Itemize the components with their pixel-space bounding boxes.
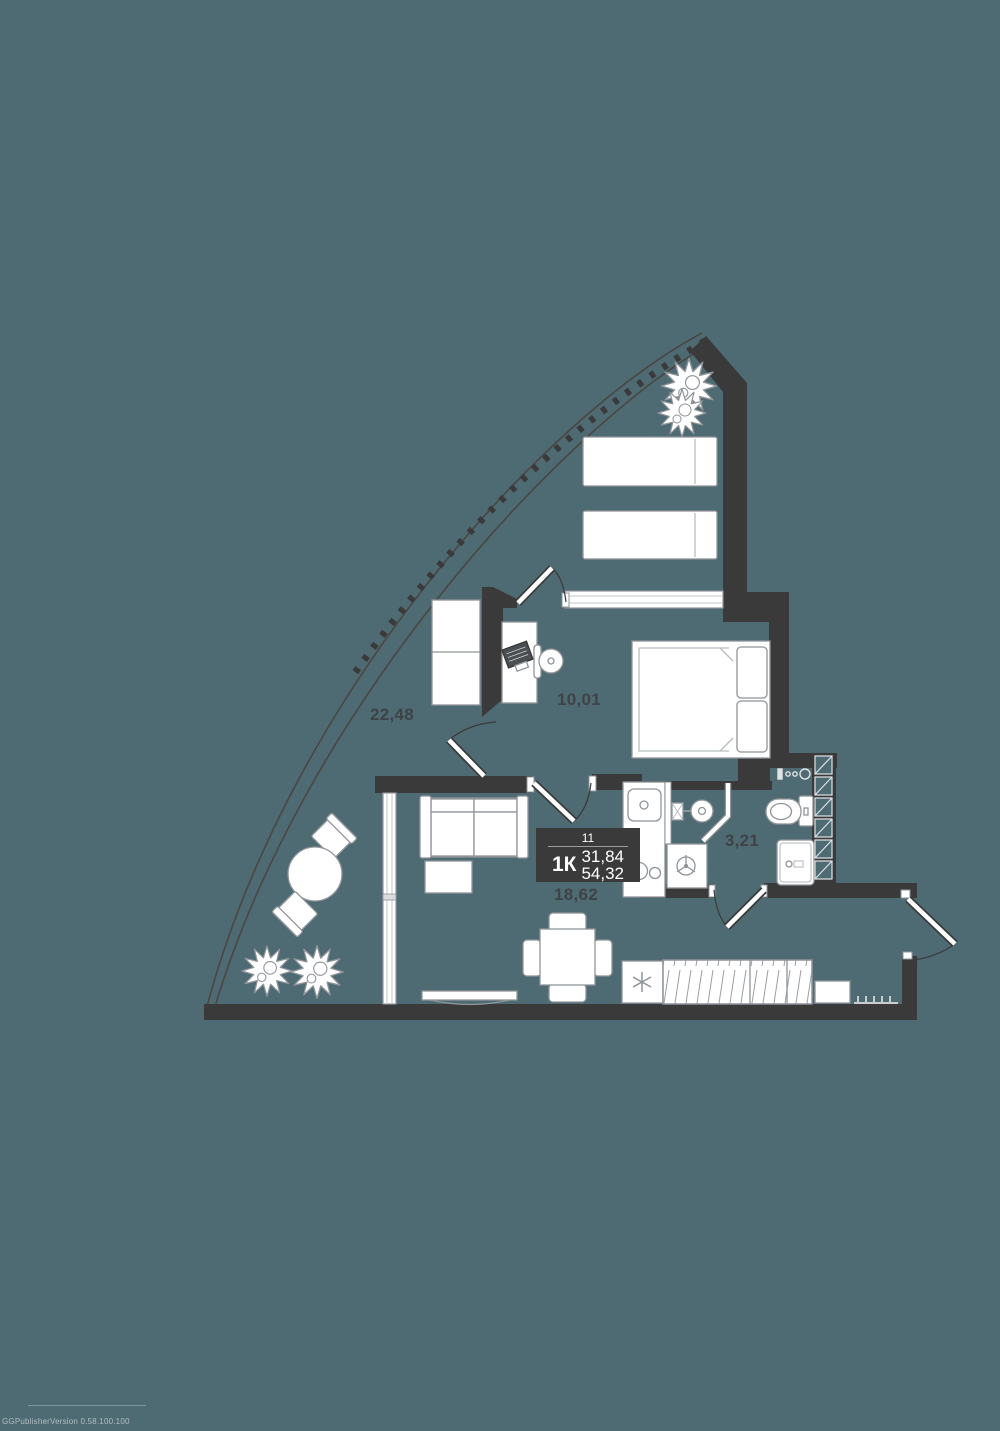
apartment-number: 11 (548, 830, 628, 847)
refrigerator (622, 961, 663, 1003)
apartment-area-secondary: 54,32 (581, 865, 624, 882)
chair-icon (549, 984, 586, 1002)
wash-basin (672, 800, 713, 822)
double-bed (632, 641, 770, 758)
wall-bedroom-east (769, 605, 789, 757)
floor-plan-page: 22,48 10,01 3,21 18,62 11 1К 31,84 54,32… (0, 0, 1000, 1431)
tv (422, 991, 517, 1005)
watermark-rule (28, 1405, 146, 1406)
terrace-bedroom-door[interactable] (518, 568, 569, 607)
sunbed (583, 437, 717, 486)
bedroom-window (565, 591, 723, 608)
desk-chair (534, 645, 563, 678)
partition-wall (665, 782, 671, 844)
shoe-bench (815, 981, 850, 1003)
chair-icon (523, 940, 541, 976)
dining-set (523, 913, 612, 1002)
chair-icon (594, 940, 612, 976)
wall-bedroom-west-diagonal (482, 699, 503, 717)
floor-plan-drawing (0, 0, 1000, 1431)
room-label-terrace: 22,48 (361, 705, 423, 725)
washing-machine (777, 840, 814, 885)
plant-icon (291, 946, 344, 999)
built-in-wardrobe (663, 960, 812, 1004)
living-room-door[interactable] (527, 776, 596, 821)
entrance-door[interactable] (901, 890, 955, 960)
sunbed (583, 511, 717, 559)
dining-table (540, 929, 595, 985)
bedroom-door[interactable] (449, 722, 496, 776)
room-label-living-kitchen: 18,62 (546, 885, 606, 905)
pillow (737, 701, 767, 752)
shower-tray (667, 844, 707, 888)
room-label-bathroom: 3,21 (714, 831, 770, 851)
bathroom-door[interactable] (709, 885, 767, 927)
wall-east-lower (902, 956, 917, 1012)
chair-icon (549, 913, 586, 931)
wall-south (204, 1004, 917, 1020)
apartment-type-label: 1К (552, 853, 577, 877)
watermark-text: GGPublisherVersion 0.58.100.100 (2, 1417, 130, 1426)
toilet (766, 796, 813, 826)
living-room-window (383, 793, 396, 1004)
sofa (420, 796, 528, 858)
pillow (737, 647, 767, 698)
apartment-area-primary: 31,84 (581, 848, 624, 865)
wardrobe (432, 600, 480, 705)
plant-icon (242, 946, 292, 996)
wall-bedroom-west (482, 599, 503, 699)
wall-living-north (375, 776, 532, 793)
utility-meters (778, 769, 810, 779)
room-label-bedroom: 10,01 (552, 690, 606, 710)
kitchen-sink (628, 789, 661, 821)
coat-hooks-icon (854, 996, 898, 1003)
apartment-info-box: 11 1К 31,84 54,32 (536, 828, 640, 882)
coffee-table (425, 861, 472, 893)
